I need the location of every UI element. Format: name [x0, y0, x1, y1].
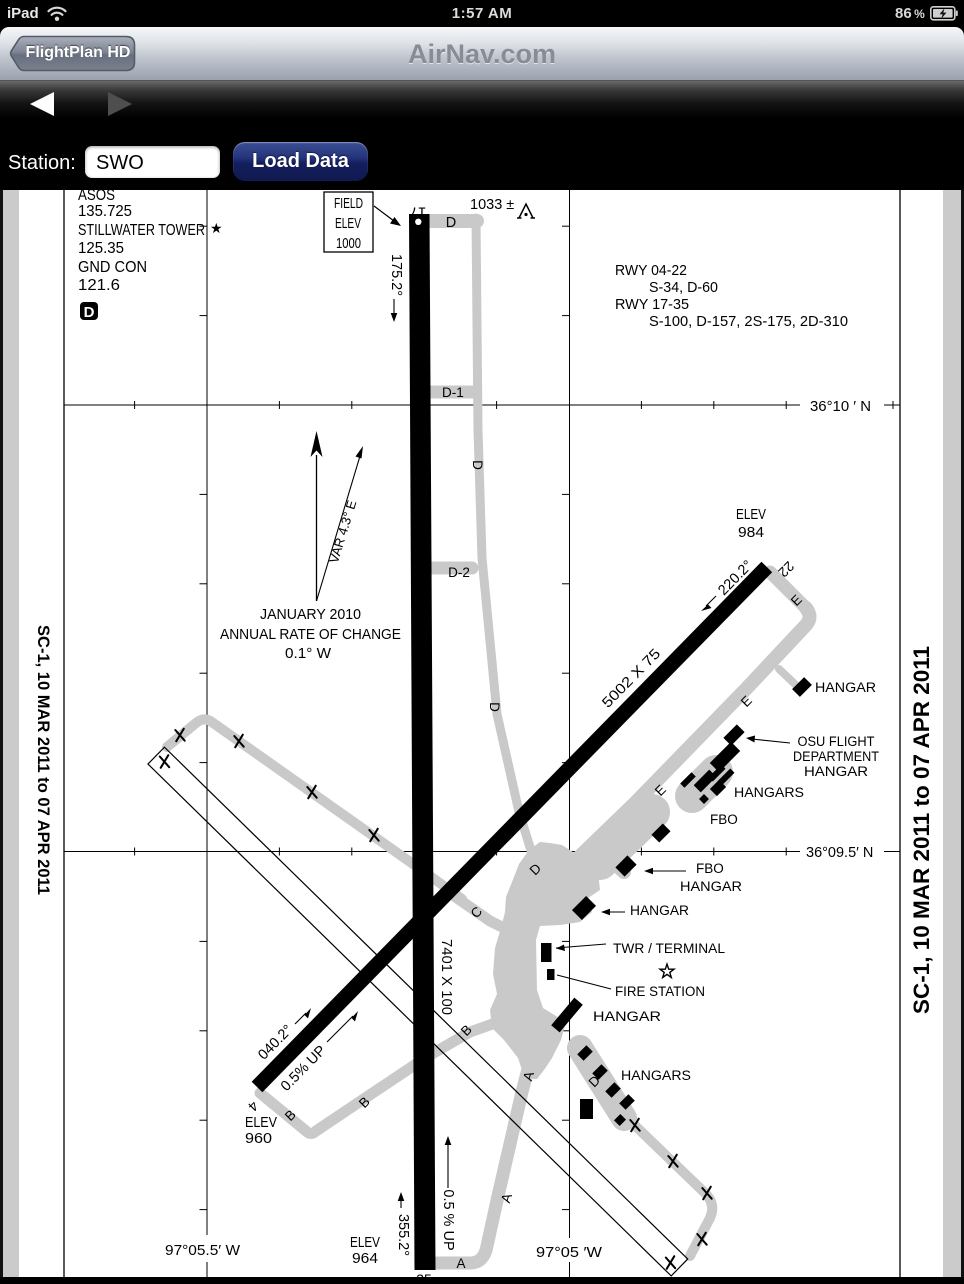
svg-text:17: 17: [410, 204, 427, 221]
svg-text:984: 984: [738, 525, 764, 541]
svg-text:960: 960: [245, 1131, 272, 1147]
svg-text:D-2: D-2: [448, 565, 470, 580]
svg-text:FIRE STATION: FIRE STATION: [615, 984, 705, 999]
svg-text:HANGARS: HANGARS: [734, 785, 804, 800]
svg-text:STILLWATER TOWER: STILLWATER TOWER: [78, 222, 205, 239]
svg-text:HANGAR: HANGAR: [593, 1009, 661, 1024]
svg-text:HANGAR: HANGAR: [630, 903, 689, 918]
svg-text:RWY 04-22: RWY 04-22: [615, 262, 687, 279]
svg-text:HANGAR: HANGAR: [815, 680, 876, 695]
svg-text:HANGAR: HANGAR: [680, 879, 742, 894]
svg-text:964: 964: [352, 1251, 378, 1267]
svg-text:355.2°: 355.2°: [395, 1214, 411, 1256]
svg-text:S-34, D-60: S-34, D-60: [649, 279, 718, 296]
svg-text:HANGAR: HANGAR: [804, 764, 868, 779]
svg-text:175.2°: 175.2°: [388, 254, 404, 296]
svg-text:D: D: [487, 702, 502, 712]
svg-text:DEPARTMENT: DEPARTMENT: [793, 749, 879, 764]
svg-text:ASOS: ASOS: [78, 190, 115, 204]
svg-text:36°10 ′ N: 36°10 ′ N: [810, 399, 871, 415]
svg-text:OSU FLIGHT: OSU FLIGHT: [798, 734, 875, 749]
svg-text:121.6: 121.6: [78, 277, 120, 294]
svg-text:135.725: 135.725: [78, 203, 132, 220]
svg-text:0.1° W: 0.1° W: [285, 645, 332, 662]
svg-text:ELEV: ELEV: [335, 215, 361, 232]
svg-text:SC-1, 10 MAR 2011 to 07 APR 20: SC-1, 10 MAR 2011 to 07 APR 2011: [909, 646, 934, 1014]
svg-text:D-1: D-1: [442, 385, 464, 400]
svg-text:D: D: [446, 215, 456, 231]
svg-text:S-100, D-157, 2S-175, 2D-310: S-100, D-157, 2S-175, 2D-310: [649, 313, 848, 330]
svg-text:7401 X 100: 7401 X 100: [438, 939, 454, 1015]
svg-text:GND CON: GND CON: [78, 259, 147, 276]
svg-text:TWR / TERMINAL: TWR / TERMINAL: [613, 941, 725, 956]
svg-text:HANGARS: HANGARS: [621, 1068, 691, 1083]
svg-text:SC-1, 10 MAR 2011 to 07 APR 20: SC-1, 10 MAR 2011 to 07 APR 2011: [34, 625, 52, 895]
svg-text:FBO: FBO: [696, 861, 724, 876]
svg-text:D: D: [470, 460, 485, 470]
svg-text:ANNUAL RATE OF CHANGE: ANNUAL RATE OF CHANGE: [220, 626, 401, 643]
svg-text:36°09.5′ N: 36°09.5′ N: [806, 845, 873, 861]
svg-text:35: 35: [416, 1271, 432, 1284]
svg-text:0.5 % UP: 0.5 % UP: [440, 1189, 456, 1250]
svg-text:D: D: [84, 304, 95, 321]
svg-text:1000: 1000: [336, 235, 361, 252]
svg-text:1033 ±: 1033 ±: [470, 197, 514, 213]
svg-text:ELEV: ELEV: [736, 507, 766, 523]
svg-text:FIELD: FIELD: [334, 195, 363, 212]
svg-text:ELEV: ELEV: [245, 1115, 277, 1131]
svg-text:JANUARY 2010: JANUARY 2010: [260, 606, 361, 623]
svg-text:★: ★: [210, 220, 223, 236]
svg-text:97°05.5′ W: 97°05.5′ W: [165, 1243, 240, 1259]
svg-text:ELEV: ELEV: [350, 1235, 380, 1251]
svg-text:125.35: 125.35: [78, 240, 124, 257]
svg-text:FBO: FBO: [710, 812, 738, 827]
svg-text:97°05 ′W: 97°05 ′W: [536, 1245, 602, 1261]
svg-text:RWY 17-35: RWY 17-35: [615, 296, 689, 313]
svg-text:A: A: [456, 1256, 465, 1271]
